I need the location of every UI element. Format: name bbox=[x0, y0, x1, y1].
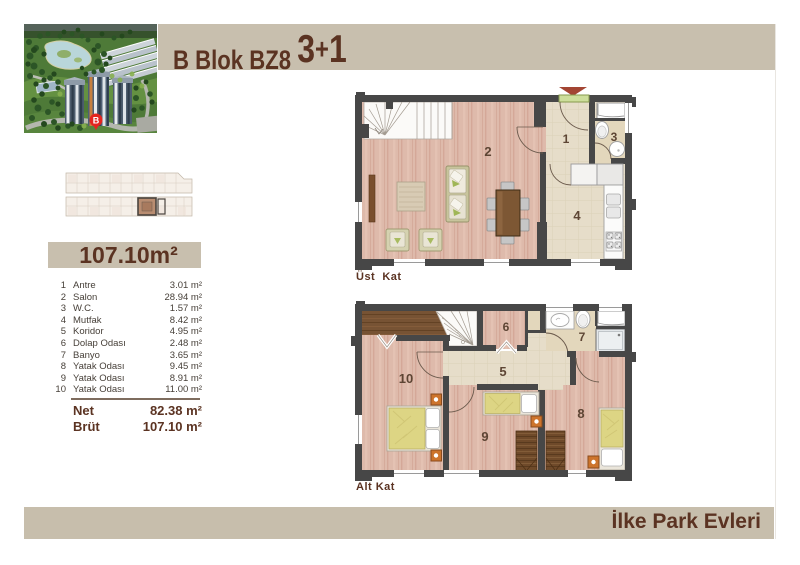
svg-text:1: 1 bbox=[563, 132, 570, 146]
svg-text:5: 5 bbox=[499, 364, 506, 379]
svg-text:3: 3 bbox=[611, 130, 618, 144]
svg-text:9: 9 bbox=[481, 429, 488, 444]
svg-text:7: 7 bbox=[579, 330, 586, 344]
svg-text:4: 4 bbox=[573, 208, 581, 223]
svg-text:8: 8 bbox=[577, 406, 584, 421]
svg-text:2: 2 bbox=[484, 144, 491, 159]
svg-text:10: 10 bbox=[399, 371, 413, 386]
svg-text:6: 6 bbox=[503, 320, 510, 334]
svg-text:B: B bbox=[93, 116, 100, 126]
